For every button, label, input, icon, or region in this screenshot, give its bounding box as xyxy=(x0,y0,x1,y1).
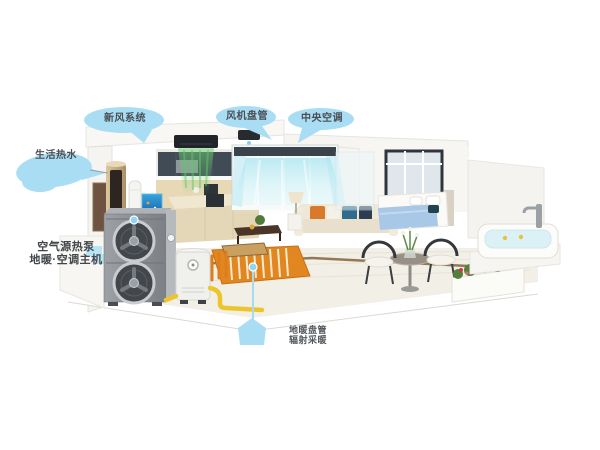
marker-dot-floor xyxy=(249,263,257,271)
label-central-ac-text: 中央空调 xyxy=(289,113,355,125)
label-fresh-air: 新风系统 xyxy=(88,113,162,125)
bonsai-plant xyxy=(255,215,265,225)
label-central-ac: 中央空调 xyxy=(289,113,355,125)
label-heat-pump-unit: 空气源热泵 地暖·空调主机 xyxy=(12,241,120,266)
label-floor-heating-line2: 辐射采暖 xyxy=(282,335,334,345)
hot-water-tank xyxy=(106,161,126,216)
label-heat-pump-line2: 地暖·空调主机 xyxy=(12,254,120,267)
fan-bottom xyxy=(114,263,154,303)
label-hot-water: 生活热水 xyxy=(18,150,94,162)
ceiling-cassette xyxy=(174,135,218,148)
heat-pump-home-system-illustration: 生活热水 新风系统 风机盘管 中央空调 空气源热泵 地暖·空调主机 地暖盘管 辐… xyxy=(0,0,600,450)
label-hot-water-text: 生活热水 xyxy=(18,150,94,162)
buffer-tank xyxy=(176,249,210,305)
fan-top xyxy=(114,221,154,261)
label-floor-heating: 地暖盘管 辐射采暖 xyxy=(282,325,334,346)
label-fan-coil: 风机盘管 xyxy=(217,111,277,123)
label-fresh-air-text: 新风系统 xyxy=(88,113,162,125)
bed xyxy=(378,190,454,230)
living-window xyxy=(230,145,346,213)
marker-dot-unit xyxy=(130,216,138,224)
label-heat-pump-line1: 空气源热泵 xyxy=(12,241,120,254)
glass-shower xyxy=(336,152,374,210)
house-cutaway-render xyxy=(0,0,600,450)
tub-faucet xyxy=(536,204,542,228)
brand-badge xyxy=(168,235,175,242)
label-floor-heating-line1: 地暖盘管 xyxy=(282,325,334,335)
window-valance xyxy=(234,147,336,156)
label-fan-coil-text: 风机盘管 xyxy=(217,111,277,123)
wood-subfloor-panel xyxy=(222,243,268,257)
flower-vase xyxy=(403,230,417,250)
